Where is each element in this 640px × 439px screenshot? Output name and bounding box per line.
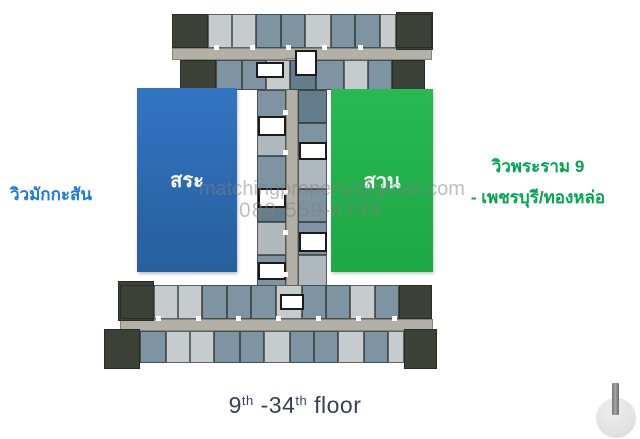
bottom-wing-row-a bbox=[178, 285, 202, 319]
bottom-wing-row-b bbox=[290, 331, 314, 363]
dark-end-unit bbox=[104, 329, 140, 369]
elevator-shaft bbox=[256, 62, 284, 78]
elevator-shaft bbox=[299, 142, 327, 160]
bottom-wing-row-a bbox=[202, 285, 227, 319]
bottom-wing-row-b bbox=[338, 331, 364, 363]
pushpin-icon bbox=[593, 381, 639, 438]
bottom-wing-row-b bbox=[314, 331, 338, 363]
door-dot bbox=[250, 45, 255, 50]
top-wing-row-a bbox=[396, 14, 432, 48]
bottom-wing-row-a bbox=[120, 285, 154, 319]
top-wing-row-a bbox=[380, 14, 396, 48]
top-wing-row-b bbox=[180, 60, 216, 90]
elevator-shaft bbox=[280, 294, 304, 310]
door-dot bbox=[316, 316, 321, 321]
dark-end-unit bbox=[404, 329, 437, 369]
door-dot bbox=[236, 316, 241, 321]
door-dot bbox=[156, 316, 161, 321]
bottom-wing-row-a bbox=[350, 285, 375, 319]
bottom-wing-row-b bbox=[190, 331, 214, 363]
floor-sup1: th bbox=[242, 393, 254, 408]
slide-canvas: สระ สวน วิวมักกะสัน วิวพระราม 9 - เพชรบุ… bbox=[0, 0, 640, 439]
bottom-wing-row-a bbox=[227, 285, 251, 319]
door-dot bbox=[283, 272, 288, 277]
watermark-phone: 089-559-8744 bbox=[239, 199, 382, 223]
top-wing-row-b bbox=[344, 60, 368, 90]
right-view-line2: - เพชรบุรี/ทองหล่อ bbox=[453, 182, 623, 213]
bottom-wing-row-a bbox=[326, 285, 350, 319]
floor-mid: -34 bbox=[254, 392, 296, 418]
top-wing-row-a bbox=[331, 14, 355, 48]
bottom-wing-row-b bbox=[364, 331, 388, 363]
top-wing-row-b bbox=[368, 60, 392, 90]
bottom-wing-row-b bbox=[240, 331, 264, 363]
bottom-wing-row-b bbox=[214, 331, 240, 363]
elevator-shaft bbox=[299, 232, 327, 252]
bottom-wing-row-a bbox=[399, 285, 432, 319]
top-wing-row-a bbox=[281, 14, 305, 48]
elevator-shaft bbox=[258, 262, 286, 280]
core-left-units bbox=[257, 222, 286, 255]
top-wing-row-a bbox=[355, 14, 380, 48]
bottom-wing-row-b bbox=[166, 331, 190, 363]
top-wing-row-a bbox=[172, 14, 208, 48]
door-dot bbox=[214, 45, 219, 50]
door-dot bbox=[322, 45, 327, 50]
core-right-units bbox=[298, 90, 327, 123]
top-wing-row-a bbox=[232, 14, 256, 48]
door-dot bbox=[358, 45, 363, 50]
core-right-units bbox=[298, 255, 327, 288]
left-view-label: วิวมักกะสัน bbox=[10, 181, 92, 208]
floor-sup2: th bbox=[295, 393, 307, 408]
bottom-wing-row-a bbox=[251, 285, 276, 319]
bottom-wing-row-a bbox=[154, 285, 178, 319]
floor-num1: 9 bbox=[229, 392, 242, 418]
top-wing-row-b bbox=[392, 60, 425, 90]
elevator-shaft bbox=[295, 50, 317, 76]
top-wing-row-a bbox=[305, 14, 331, 48]
top-wing-row-b bbox=[316, 60, 344, 90]
door-dot bbox=[286, 45, 291, 50]
right-view-label: วิวพระราม 9 - เพชรบุรี/ทองหล่อ bbox=[453, 151, 623, 213]
top-wing-row-a bbox=[208, 14, 232, 48]
floor-suffix: floor bbox=[307, 392, 361, 418]
bottom-wing-row-a bbox=[375, 285, 399, 319]
watermark-email: matchingproperty@gmail.com bbox=[199, 178, 465, 201]
floor-range-label: 9th -34th floor bbox=[0, 392, 590, 419]
elevator-shaft bbox=[258, 116, 286, 136]
top-wing-row-a bbox=[256, 14, 281, 48]
bottom-wing-row-a bbox=[302, 285, 326, 319]
door-dot bbox=[283, 110, 288, 115]
door-dot bbox=[283, 150, 288, 155]
right-view-line1: วิวพระราม 9 bbox=[453, 151, 623, 182]
door-dot bbox=[392, 316, 397, 321]
door-dot bbox=[283, 230, 288, 235]
pin-stick bbox=[612, 383, 619, 415]
door-dot bbox=[276, 316, 281, 321]
door-dot bbox=[356, 316, 361, 321]
bottom-wing-row-b bbox=[140, 331, 166, 363]
bottom-wing-row-b bbox=[388, 331, 404, 363]
door-dot bbox=[196, 316, 201, 321]
top-wing-row-b bbox=[216, 60, 242, 90]
bottom-wing-row-b bbox=[264, 331, 290, 363]
